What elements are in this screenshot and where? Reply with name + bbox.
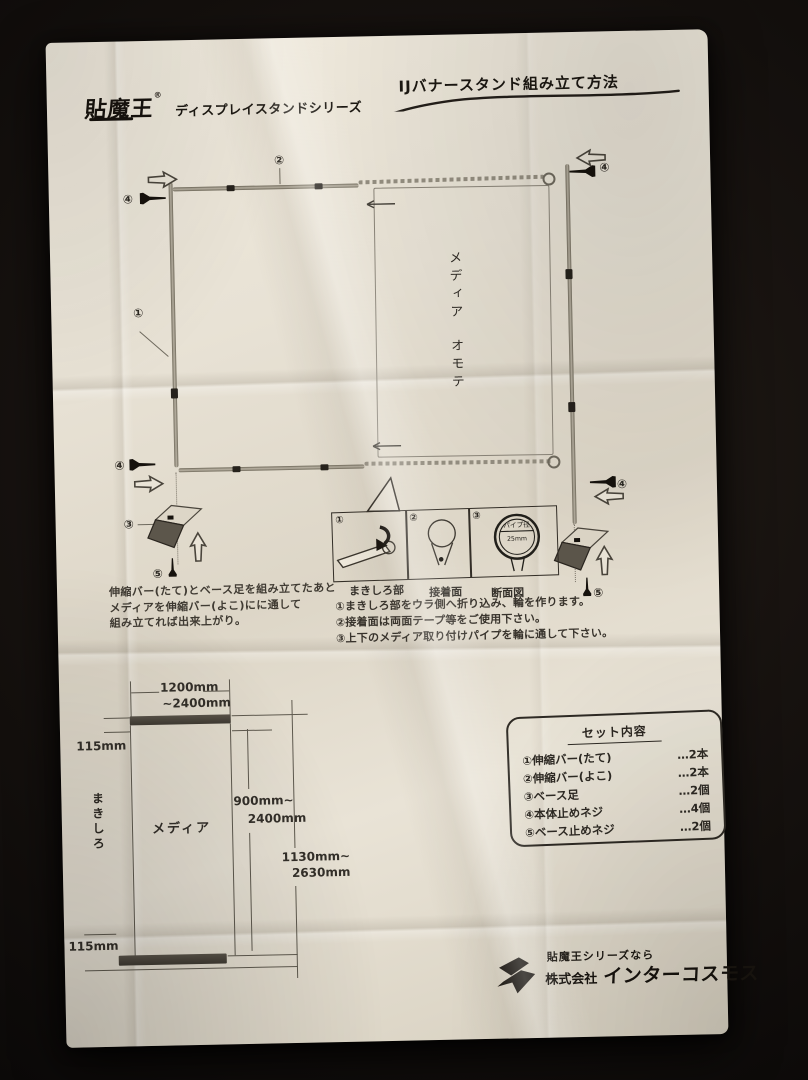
insert-arrow-icon (146, 170, 178, 189)
media-bottom-loop (547, 455, 560, 468)
bar-joint (227, 185, 235, 191)
intercosmos-logo-icon (493, 955, 538, 998)
dim-stub (104, 717, 130, 719)
set-item-count: …4個 (679, 799, 711, 818)
bar-joint (320, 464, 328, 470)
dim-line (131, 692, 159, 694)
fold-hem-figure (334, 523, 404, 579)
sheet-title-block: IJバナースタンド組み立て方法 (398, 71, 619, 97)
assembly-note: 伸縮バー(たて)とベース足を組み立てたあと メディアを伸縮バー(よこ)にに通して… (109, 580, 360, 632)
set-contents-box: セット内容 ①伸縮バー(たて) …2本 ②伸縮バー(よこ) …2本 ③ベース足 … (506, 709, 727, 847)
detail-panel-box: ① ② ③ パイプ径 25mm (331, 505, 559, 582)
set-item-label: ③ベース足 (523, 786, 579, 806)
dim-stub (104, 731, 130, 733)
media-height-1: 900mm~ (233, 794, 293, 807)
bottom-margin-dim: 115mm (68, 940, 118, 953)
dim-stub (84, 934, 116, 936)
pipe-diameter-label: パイプ径 (503, 520, 530, 530)
total-height-2: 2630mm (292, 866, 351, 879)
instruction-sheet: 貼魔王® ディスプレイスタンドシリーズ IJバナースタンド組み立て方法 (46, 29, 729, 1048)
callout-2-line (279, 168, 280, 184)
top-pipe-bar (130, 714, 231, 725)
bar-joint (315, 183, 323, 189)
callout-3: ③ (124, 518, 134, 530)
width-dim-1: 1200mm (160, 681, 219, 694)
dim-ext-line (130, 681, 132, 717)
dim-stub (228, 954, 298, 956)
company-name-block: 株式会社インターコスモス (545, 958, 760, 989)
set-item-label: ②伸縮バー(よこ) (523, 766, 613, 787)
bar-joint (232, 466, 240, 472)
panel-divider (405, 511, 409, 579)
right-pole (565, 164, 577, 524)
set-contents-title: セット内容 (567, 722, 661, 746)
dim-ext-line (295, 886, 298, 978)
dim-ext-line (249, 833, 252, 951)
media-front-label-2: オモテ (446, 338, 466, 408)
dim-ext-line (247, 729, 249, 789)
photo-scene: 貼魔王® ディスプレイスタンドシリーズ IJバナースタンド組み立て方法 (0, 0, 808, 1080)
bottom-media-pipe (364, 459, 552, 466)
callout-1: ① (133, 307, 143, 319)
media-height-2: 2400mm (248, 812, 307, 825)
paper-crease (64, 907, 726, 951)
top-margin-dim: 115mm (76, 740, 126, 753)
pole-joint (568, 402, 575, 412)
insert-arrow-icon (575, 148, 607, 167)
set-item-count: …2本 (678, 763, 710, 782)
media-right-edge (230, 723, 236, 955)
callout-2: ② (274, 154, 284, 166)
pole-joint (565, 269, 572, 279)
callout-4-bottom-left: ④ (114, 459, 124, 471)
dim-ext-line (291, 700, 295, 848)
media-top-loop (542, 172, 555, 185)
callout-1-line (139, 331, 168, 357)
makishiro-label: まきしろ (89, 792, 108, 888)
cross-section-figure: パイプ径 25mm (478, 508, 556, 574)
bar-joint (171, 388, 178, 398)
set-item-count: …2個 (678, 781, 710, 800)
base-foot (143, 503, 208, 552)
company-prefix: 株式会社 (545, 972, 597, 988)
media-front-label-1: メディア (444, 250, 465, 346)
series-label: ディスプレイスタンドシリーズ (175, 100, 362, 119)
top-media-pipe (358, 175, 544, 185)
dim-stub (232, 714, 308, 717)
callout-4-top-left: ④ (123, 193, 133, 205)
base-foot (550, 525, 615, 574)
bottom-horizontal-bar (178, 464, 364, 472)
pipe-diameter-value: 25mm (507, 535, 527, 543)
set-item-label: ⑤ベース止めネジ (525, 820, 615, 841)
panel-callout-triangle (363, 476, 404, 514)
dim-stub (232, 729, 272, 731)
step-instructions: ①まきしろ部をウラ側へ折り込み、輪を作ります。 ②接着面は両面テープ等をご使用下… (335, 593, 636, 647)
panel-1-label: まきしろ部 (349, 582, 404, 599)
callout-5-left: ⑤ (153, 568, 163, 580)
base-screw-icon (167, 557, 177, 577)
brand-logo: 貼魔王® ディスプレイスタンドシリーズ (85, 86, 363, 124)
set-item-count: …2本 (677, 745, 709, 764)
body-screw-icon (128, 458, 156, 472)
company-name: インターコスモス (603, 958, 760, 988)
thin-left-arrow-icon (367, 441, 403, 452)
media-left-edge (130, 725, 136, 957)
total-height-1: 1130mm~ (282, 850, 351, 863)
panel-divider (468, 509, 472, 577)
dim-stub (85, 966, 298, 971)
insert-arrow-icon (593, 487, 625, 506)
top-horizontal-bar (173, 184, 359, 192)
media-dim-label: メディア (152, 822, 211, 836)
width-dim-2: ~2400mm (162, 696, 231, 709)
bottom-pipe-bar (119, 953, 227, 965)
body-screw-icon (139, 192, 167, 206)
thin-left-arrow-icon (361, 199, 397, 210)
set-item-count: …2個 (680, 817, 712, 836)
insert-arrow-icon (133, 475, 165, 494)
vertical-extension-bar (168, 182, 178, 467)
loop-figure (417, 515, 467, 574)
